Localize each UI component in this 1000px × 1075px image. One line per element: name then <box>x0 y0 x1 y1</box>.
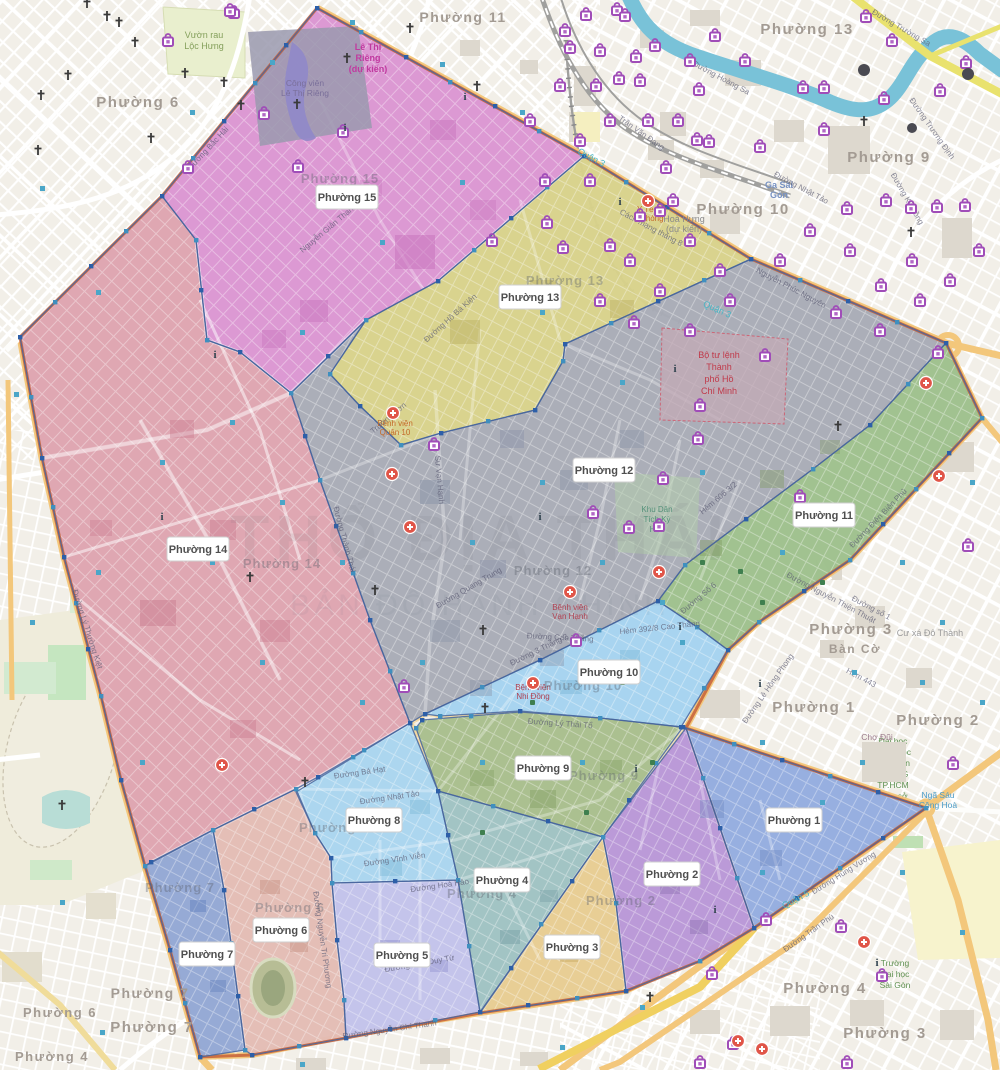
svg-text:Phường 14: Phường 14 <box>169 544 228 556</box>
svg-text:i: i <box>758 678 761 690</box>
svg-text:Phường 2: Phường 2 <box>586 893 656 908</box>
svg-text:Phường 9: Phường 9 <box>847 149 931 166</box>
svg-text:Phường 7: Phường 7 <box>181 949 233 961</box>
svg-text:Phường 1: Phường 1 <box>772 699 856 716</box>
svg-text:Phường 7: Phường 7 <box>110 1019 194 1036</box>
svg-text:Bộ tư lệnh: Bộ tư lệnh <box>698 350 740 360</box>
svg-text:Phường 8: Phường 8 <box>348 815 400 827</box>
svg-text:Phường 4: Phường 4 <box>783 980 867 997</box>
svg-text:phố Hồ: phố Hồ <box>704 374 733 384</box>
svg-text:i: i <box>343 122 346 134</box>
svg-text:Phường 3: Phường 3 <box>843 1025 927 1042</box>
svg-text:Chí Minh: Chí Minh <box>701 386 737 396</box>
svg-text:Chợ Đũi: Chợ Đũi <box>861 732 893 742</box>
svg-text:Phường 6: Phường 6 <box>96 94 180 111</box>
svg-text:Phường 13: Phường 13 <box>760 21 853 38</box>
svg-text:i: i <box>713 904 716 916</box>
svg-text:i: i <box>875 957 878 969</box>
svg-text:i: i <box>673 363 676 375</box>
svg-text:Cư xá Đô Thành: Cư xá Đô Thành <box>897 628 963 638</box>
svg-text:Vạn Hạnh: Vạn Hạnh <box>552 612 588 621</box>
svg-text:Quận 10: Quận 10 <box>380 428 411 437</box>
svg-text:Phường 11: Phường 11 <box>419 9 506 25</box>
svg-text:Phường 7: Phường 7 <box>111 985 190 1001</box>
svg-text:Phường 9: Phường 9 <box>517 763 569 775</box>
svg-text:Phường 1: Phường 1 <box>768 815 820 827</box>
svg-text:Công viên: Công viên <box>286 78 325 88</box>
svg-text:Bàn Cờ: Bàn Cờ <box>829 642 881 656</box>
svg-text:Lộc Hưng: Lộc Hưng <box>184 41 224 51</box>
svg-text:Phường 7: Phường 7 <box>145 880 215 895</box>
svg-text:Phường 12: Phường 12 <box>575 465 634 477</box>
svg-text:Phường 10: Phường 10 <box>580 667 639 679</box>
svg-text:Phường 10: Phường 10 <box>696 201 789 218</box>
svg-text:Riêng: Riêng <box>355 53 380 63</box>
svg-text:Phường 3: Phường 3 <box>546 942 598 954</box>
svg-text:(dự kiến): (dự kiến) <box>349 64 388 74</box>
svg-text:Phường 2: Phường 2 <box>646 869 698 881</box>
svg-text:Phường 13: Phường 13 <box>501 292 560 304</box>
svg-text:i: i <box>634 763 637 775</box>
svg-text:BẢN ĐỒ HÀNH CHÍNH: BẢN ĐỒ HÀNH CHÍNH <box>290 588 670 622</box>
svg-text:Phường 12: Phường 12 <box>514 563 592 578</box>
svg-text:Phường 5: Phường 5 <box>376 950 428 962</box>
svg-text:Vườn rau: Vườn rau <box>185 30 223 40</box>
svg-text:Lê Thị: Lê Thị <box>355 42 382 52</box>
svg-text:Phường 2: Phường 2 <box>896 712 980 729</box>
svg-text:Phường 15: Phường 15 <box>301 171 379 186</box>
svg-text:Gòn: Gòn <box>770 190 788 200</box>
svg-text:i: i <box>160 511 163 523</box>
svg-text:Trường: Trường <box>881 958 910 968</box>
svg-text:Ngã Sáu: Ngã Sáu <box>921 790 954 800</box>
svg-text:Lê Thị Riêng: Lê Thị Riêng <box>281 88 329 98</box>
svg-text:Phường 6: Phường 6 <box>23 1005 97 1020</box>
svg-text:i: i <box>618 196 621 208</box>
svg-text:Phường 14: Phường 14 <box>243 556 321 571</box>
svg-text:Cộng Hoà: Cộng Hoà <box>919 800 958 810</box>
svg-text:i: i <box>463 91 466 103</box>
svg-text:Phường 11: Phường 11 <box>795 510 853 522</box>
svg-text:Phường 4: Phường 4 <box>476 875 529 887</box>
svg-text:Phường 6: Phường 6 <box>255 925 307 937</box>
svg-text:i: i <box>538 511 541 523</box>
svg-text:Thành: Thành <box>706 362 732 372</box>
svg-text:Phường 15: Phường 15 <box>318 192 377 204</box>
svg-text:Bệnh viện: Bệnh viện <box>552 603 588 612</box>
svg-text:Phường 4: Phường 4 <box>15 1049 89 1064</box>
svg-text:Phường 3: Phường 3 <box>809 621 893 638</box>
svg-text:Nhi Đồng: Nhi Đồng <box>516 692 549 701</box>
svg-text:i: i <box>213 349 216 361</box>
svg-text:Phường 9: Phường 9 <box>569 768 639 783</box>
svg-text:i: i <box>678 621 681 633</box>
